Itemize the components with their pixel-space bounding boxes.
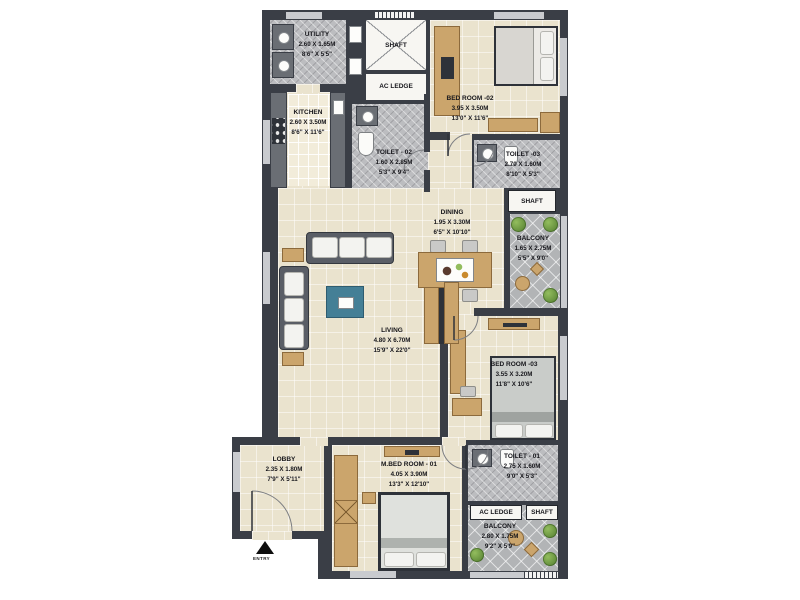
window-bedroom2-top <box>494 12 544 19</box>
plant-icon <box>511 217 526 232</box>
wardrobe-icon <box>334 455 358 567</box>
plant-icon <box>543 524 557 538</box>
sink-icon <box>349 58 362 75</box>
ac-ledge-bottom-box: AC LEDGE <box>470 505 522 520</box>
cabinet-icon <box>444 282 459 344</box>
opening-utility-kitchen <box>296 84 320 93</box>
label-toilet3: TOILET -03 2.70 X 1.60M 8'10" X 5'3" <box>488 150 558 179</box>
label-balcony-bottom: BALCONY 2.80 X 1.75M 9'2" X 5'9" <box>468 522 532 551</box>
side-table-icon <box>282 352 304 366</box>
patio-table-icon <box>515 276 530 291</box>
label-utility: UTILITY 2.60 X 1.65M 8'6" X 5'5" <box>288 30 346 59</box>
wardrobe-icon <box>540 112 560 133</box>
window-utility <box>286 12 322 19</box>
desk-icon <box>452 398 482 416</box>
window-living-left <box>263 252 270 304</box>
label-dining: DINING 1.95 X 3.30M 6'5" X 10'10" <box>412 208 492 237</box>
label-toilet1: TOILET - 01 2.75 X 1.60M 9'0" X 5'3" <box>486 452 558 481</box>
sink-icon <box>349 26 362 43</box>
dresser-icon <box>384 446 440 457</box>
opening-entry <box>252 531 292 540</box>
tv-unit-icon <box>488 318 540 330</box>
window-master-bottom <box>350 571 396 578</box>
bed-icon <box>378 492 450 571</box>
window-bedroom2-right <box>560 38 567 96</box>
label-kitchen: KITCHEN 2.60 X 3.50M 8'6" X 11'6" <box>270 108 346 137</box>
wall-bedroom2-bottom <box>430 132 450 140</box>
label-balcony-right: BALCONY 1.65 X 2.75M 5'5" X 9'0" <box>502 234 564 263</box>
label-lobby: LOBBY 2.35 X 1.80M 7'9" X 5'11" <box>244 455 324 484</box>
basin-counter <box>356 106 378 126</box>
sofa-icon <box>279 266 309 350</box>
plant-icon <box>543 217 558 232</box>
plant-icon <box>543 552 557 566</box>
rug-icon <box>326 286 364 318</box>
corridor-floor <box>428 134 472 192</box>
opening-living-master <box>442 437 466 446</box>
label-toilet2: TOILET - 02 1.60 X 2.85M 5'3" X 9'4" <box>362 148 426 177</box>
window-kitchen-left <box>263 120 270 164</box>
opening-living-lobby <box>300 437 328 446</box>
side-table-icon <box>362 492 376 504</box>
label-shaft-top: SHAFT <box>366 20 426 70</box>
label-master-bedroom: M.BED ROOM - 01 4.05 X 3.90M 13'3" X 12'… <box>366 460 452 489</box>
floor-plan: SHAFT <box>0 0 800 600</box>
side-table-icon <box>282 248 304 262</box>
vent-hatch-top <box>374 12 414 18</box>
vent-hatch-bottom <box>524 572 558 578</box>
window-lobby-left <box>233 452 240 492</box>
sofa-icon <box>306 232 394 264</box>
label-ac-ledge-top: AC LEDGE <box>376 74 416 100</box>
bed-icon <box>494 26 558 86</box>
label-bedroom3: BED ROOM -03 3.55 X 3.20M 11'8" X 10'6" <box>466 360 562 389</box>
plant-icon <box>543 288 558 303</box>
label-bedroom2: BED ROOM -02 3.95 X 3.50M 13'0" X 11'6" <box>428 94 512 123</box>
entry-label: ENTRY <box>253 556 270 561</box>
label-living: LIVING 4.80 X 6.70M 15'9" X 22'0" <box>350 326 434 355</box>
shaft-bottom-box: SHAFT <box>526 505 558 520</box>
entry-arrow-icon <box>256 541 274 554</box>
shaft-right-box: SHAFT <box>508 190 556 212</box>
wall-bedroom3-top-b <box>474 308 568 316</box>
dining-chair-icon <box>462 289 478 302</box>
